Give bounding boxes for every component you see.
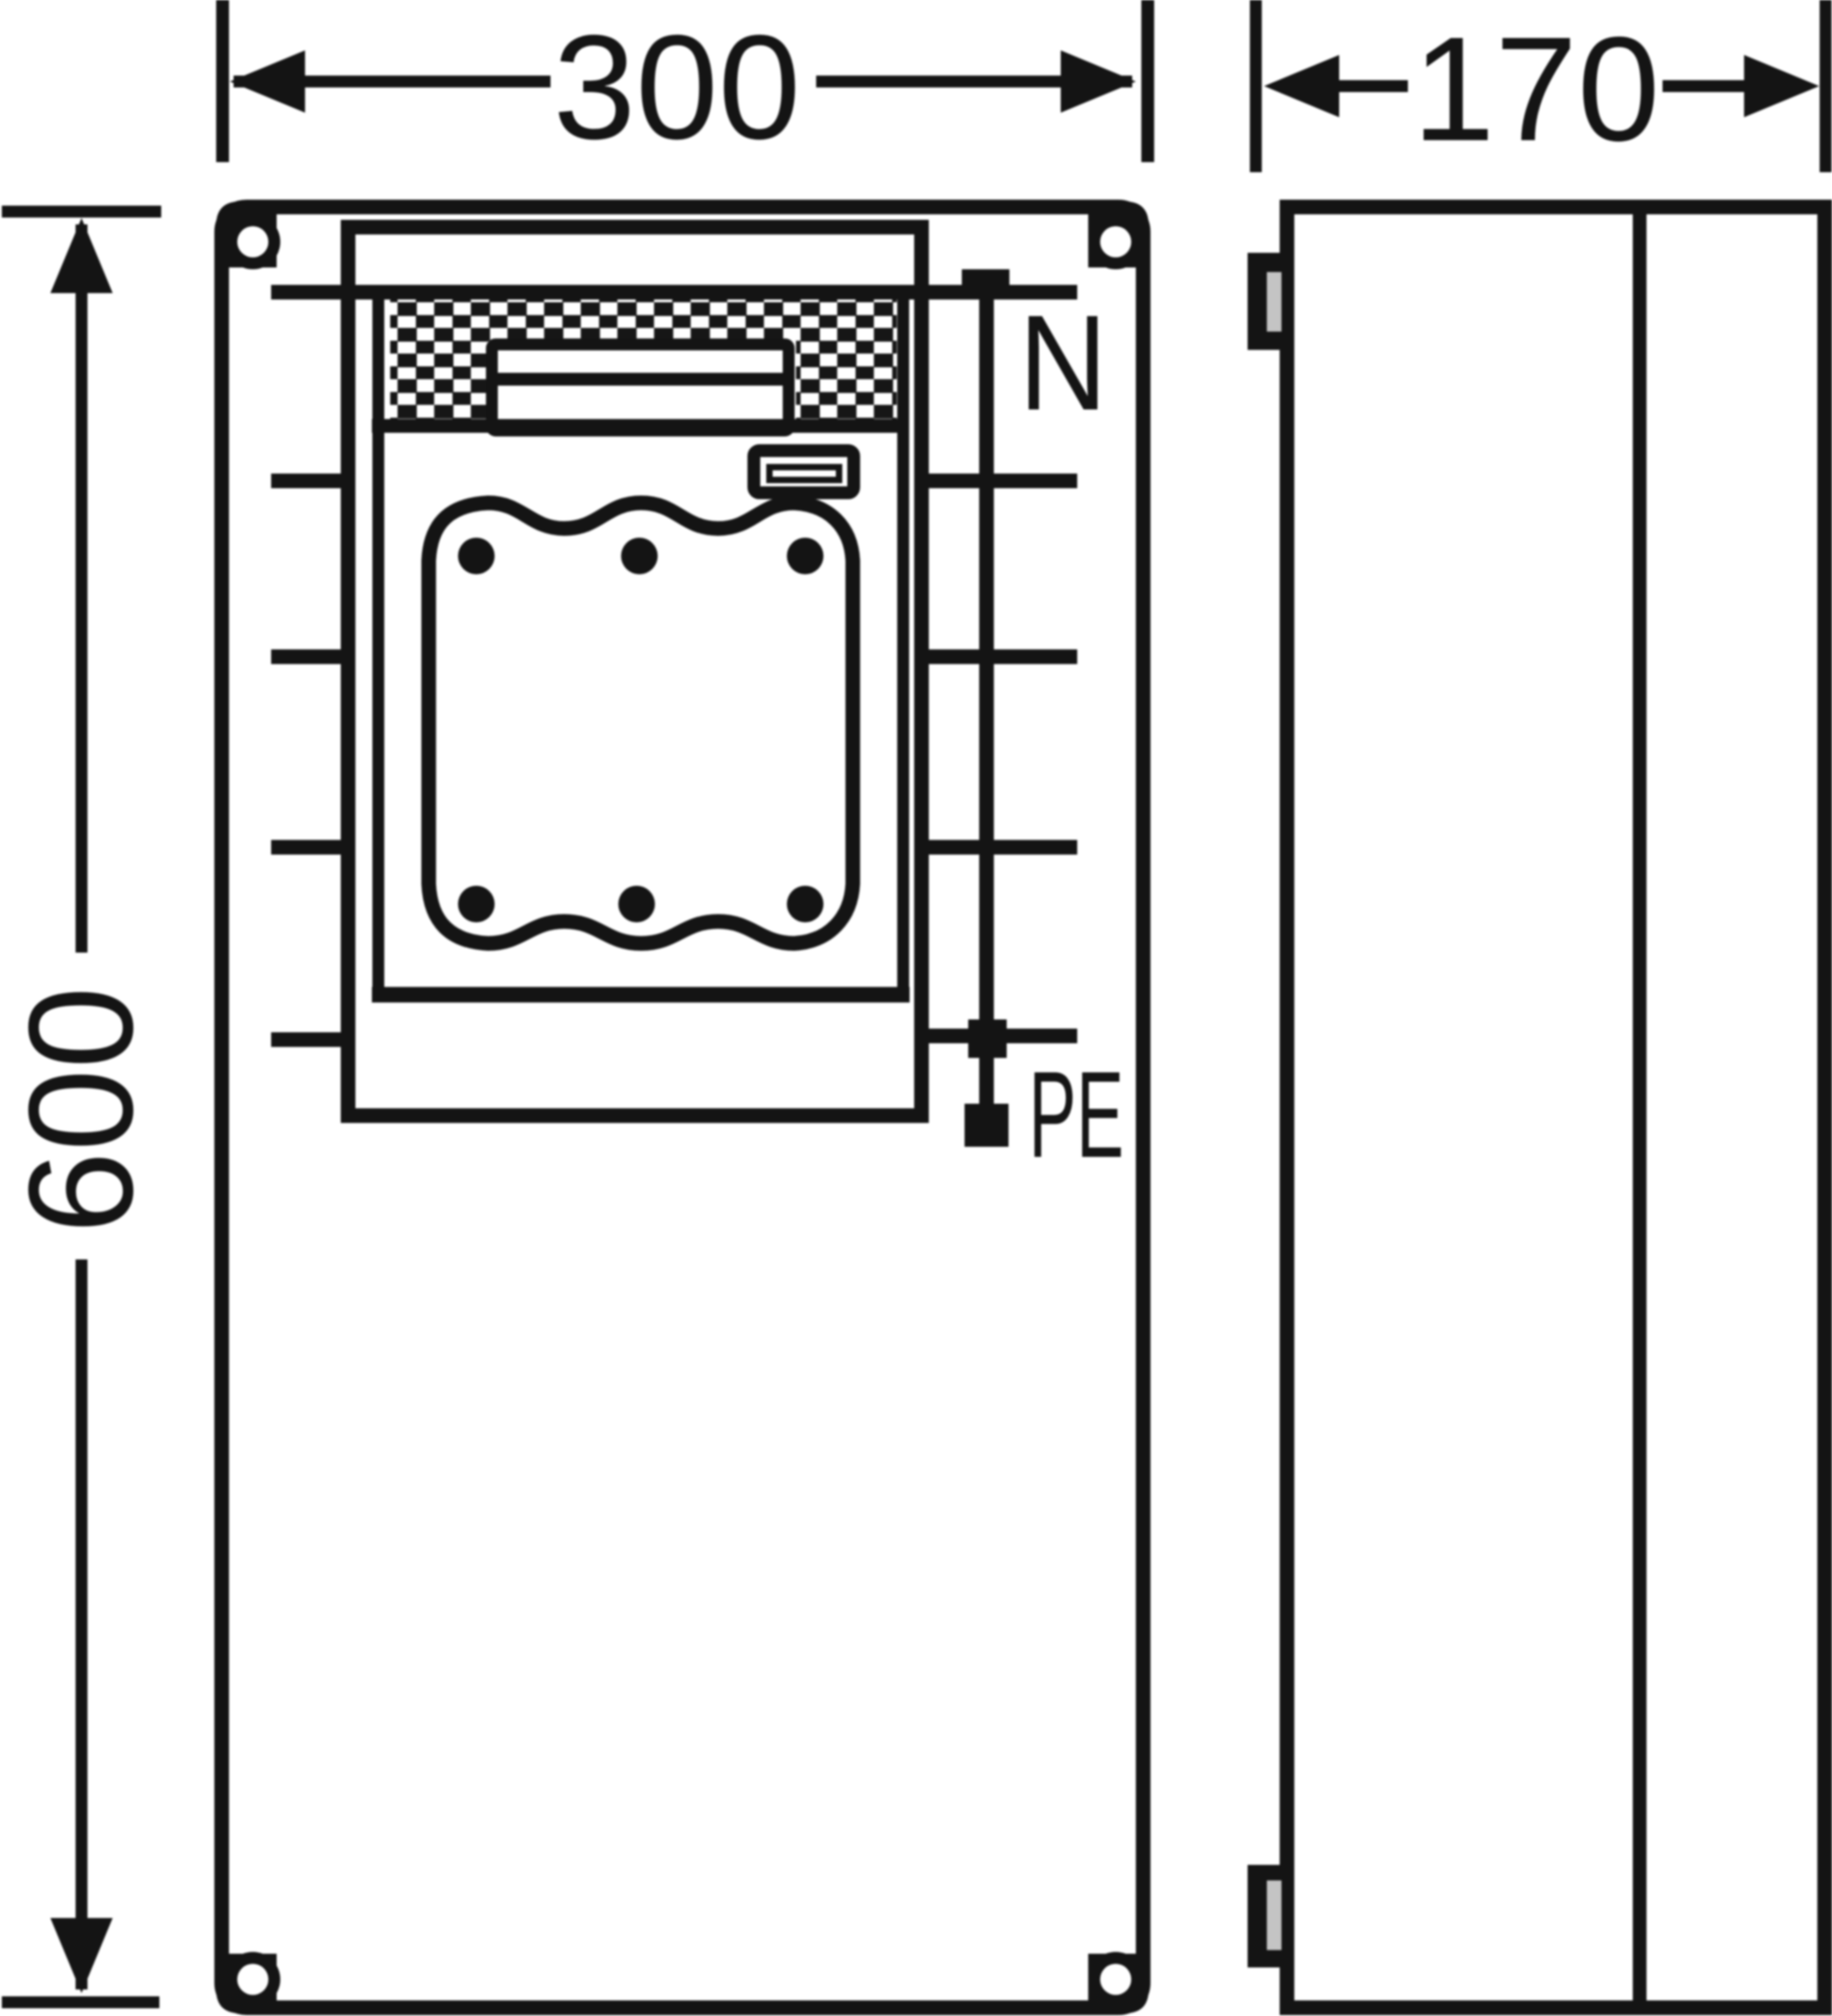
svg-text:PE: PE [1029,1047,1124,1183]
svg-text:N: N [1019,288,1107,439]
svg-text:600: 600 [0,986,164,1234]
svg-text:300: 300 [553,5,801,170]
svg-text:170: 170 [1412,6,1660,172]
